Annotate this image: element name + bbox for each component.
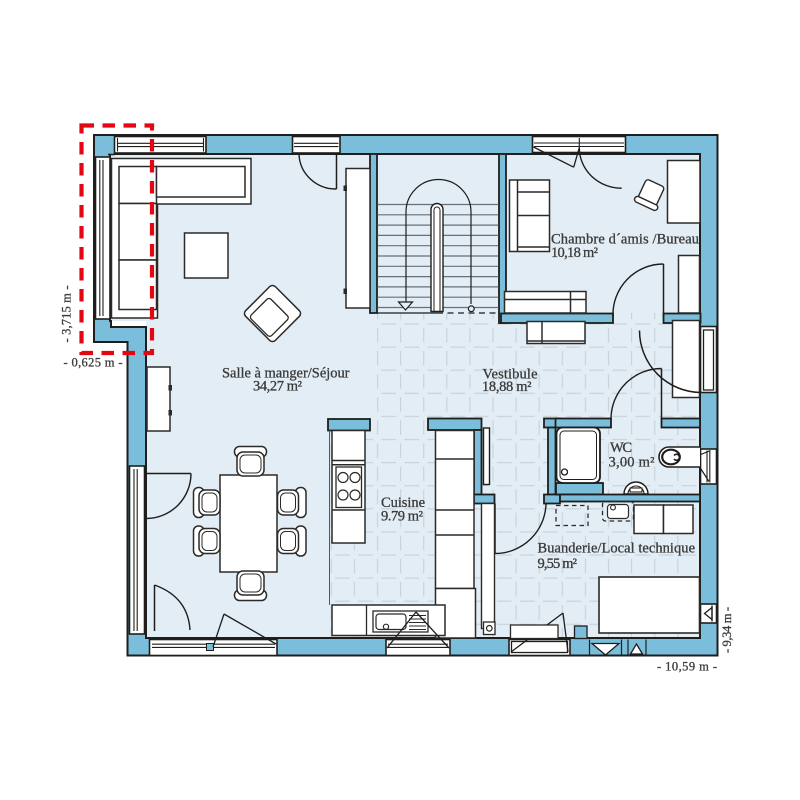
- svg-text:9.79 m²: 9.79 m²: [381, 509, 424, 525]
- svg-text:- 3,715 m -: - 3,715 m -: [60, 286, 74, 343]
- svg-text:9,55 m²: 9,55 m²: [538, 556, 578, 572]
- svg-text:34,27 m²: 34,27 m²: [253, 379, 303, 395]
- svg-text:- 10,59 m -: - 10,59 m -: [657, 660, 717, 674]
- svg-text:Buanderie/Local technique: Buanderie/Local technique: [538, 541, 696, 557]
- svg-text:3,00 m²: 3,00 m²: [609, 455, 656, 471]
- svg-text:18,88 m²: 18,88 m²: [482, 379, 532, 395]
- svg-text:10,18 m²: 10,18 m²: [551, 245, 599, 261]
- svg-text:- 9,34 m -: - 9,34 m -: [720, 607, 734, 653]
- svg-text:- 0,625 m -: - 0,625 m -: [64, 356, 123, 370]
